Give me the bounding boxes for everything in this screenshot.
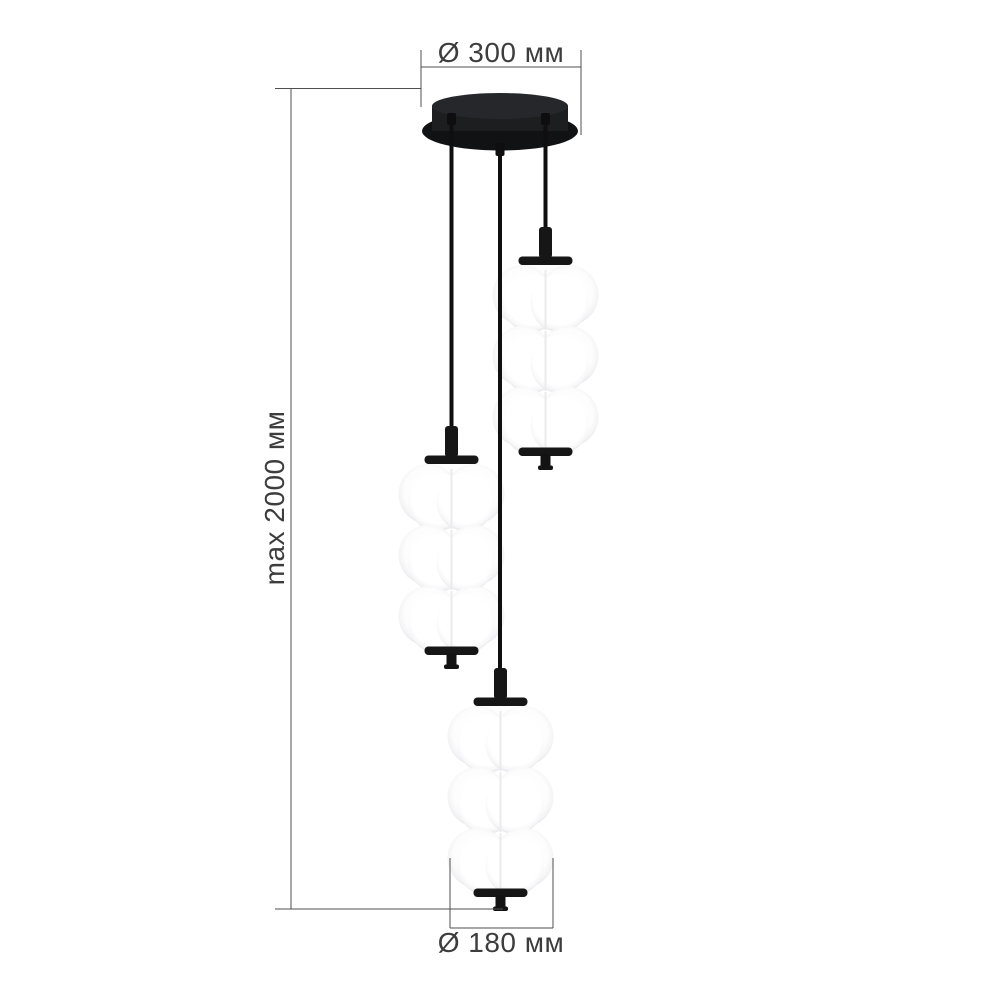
product-dimension-diagram: Ø 300 мм max 2000 мм Ø 180 мм — [0, 0, 1000, 1000]
diagram-canvas: Ø 300 мм max 2000 мм Ø 180 мм — [0, 0, 1000, 1000]
cord-grip-left — [447, 113, 456, 125]
max-height-label: max 2000 мм — [259, 411, 290, 586]
canopy-diameter-label: Ø 300 мм — [438, 37, 565, 68]
ceiling-canopy — [422, 93, 578, 156]
pendant-middle-left — [399, 426, 505, 669]
cord-grip-right — [541, 113, 550, 125]
pendant-upper-right — [493, 227, 599, 470]
shade-diameter-label: Ø 180 мм — [438, 927, 565, 958]
pendant-lower-center — [448, 668, 554, 911]
